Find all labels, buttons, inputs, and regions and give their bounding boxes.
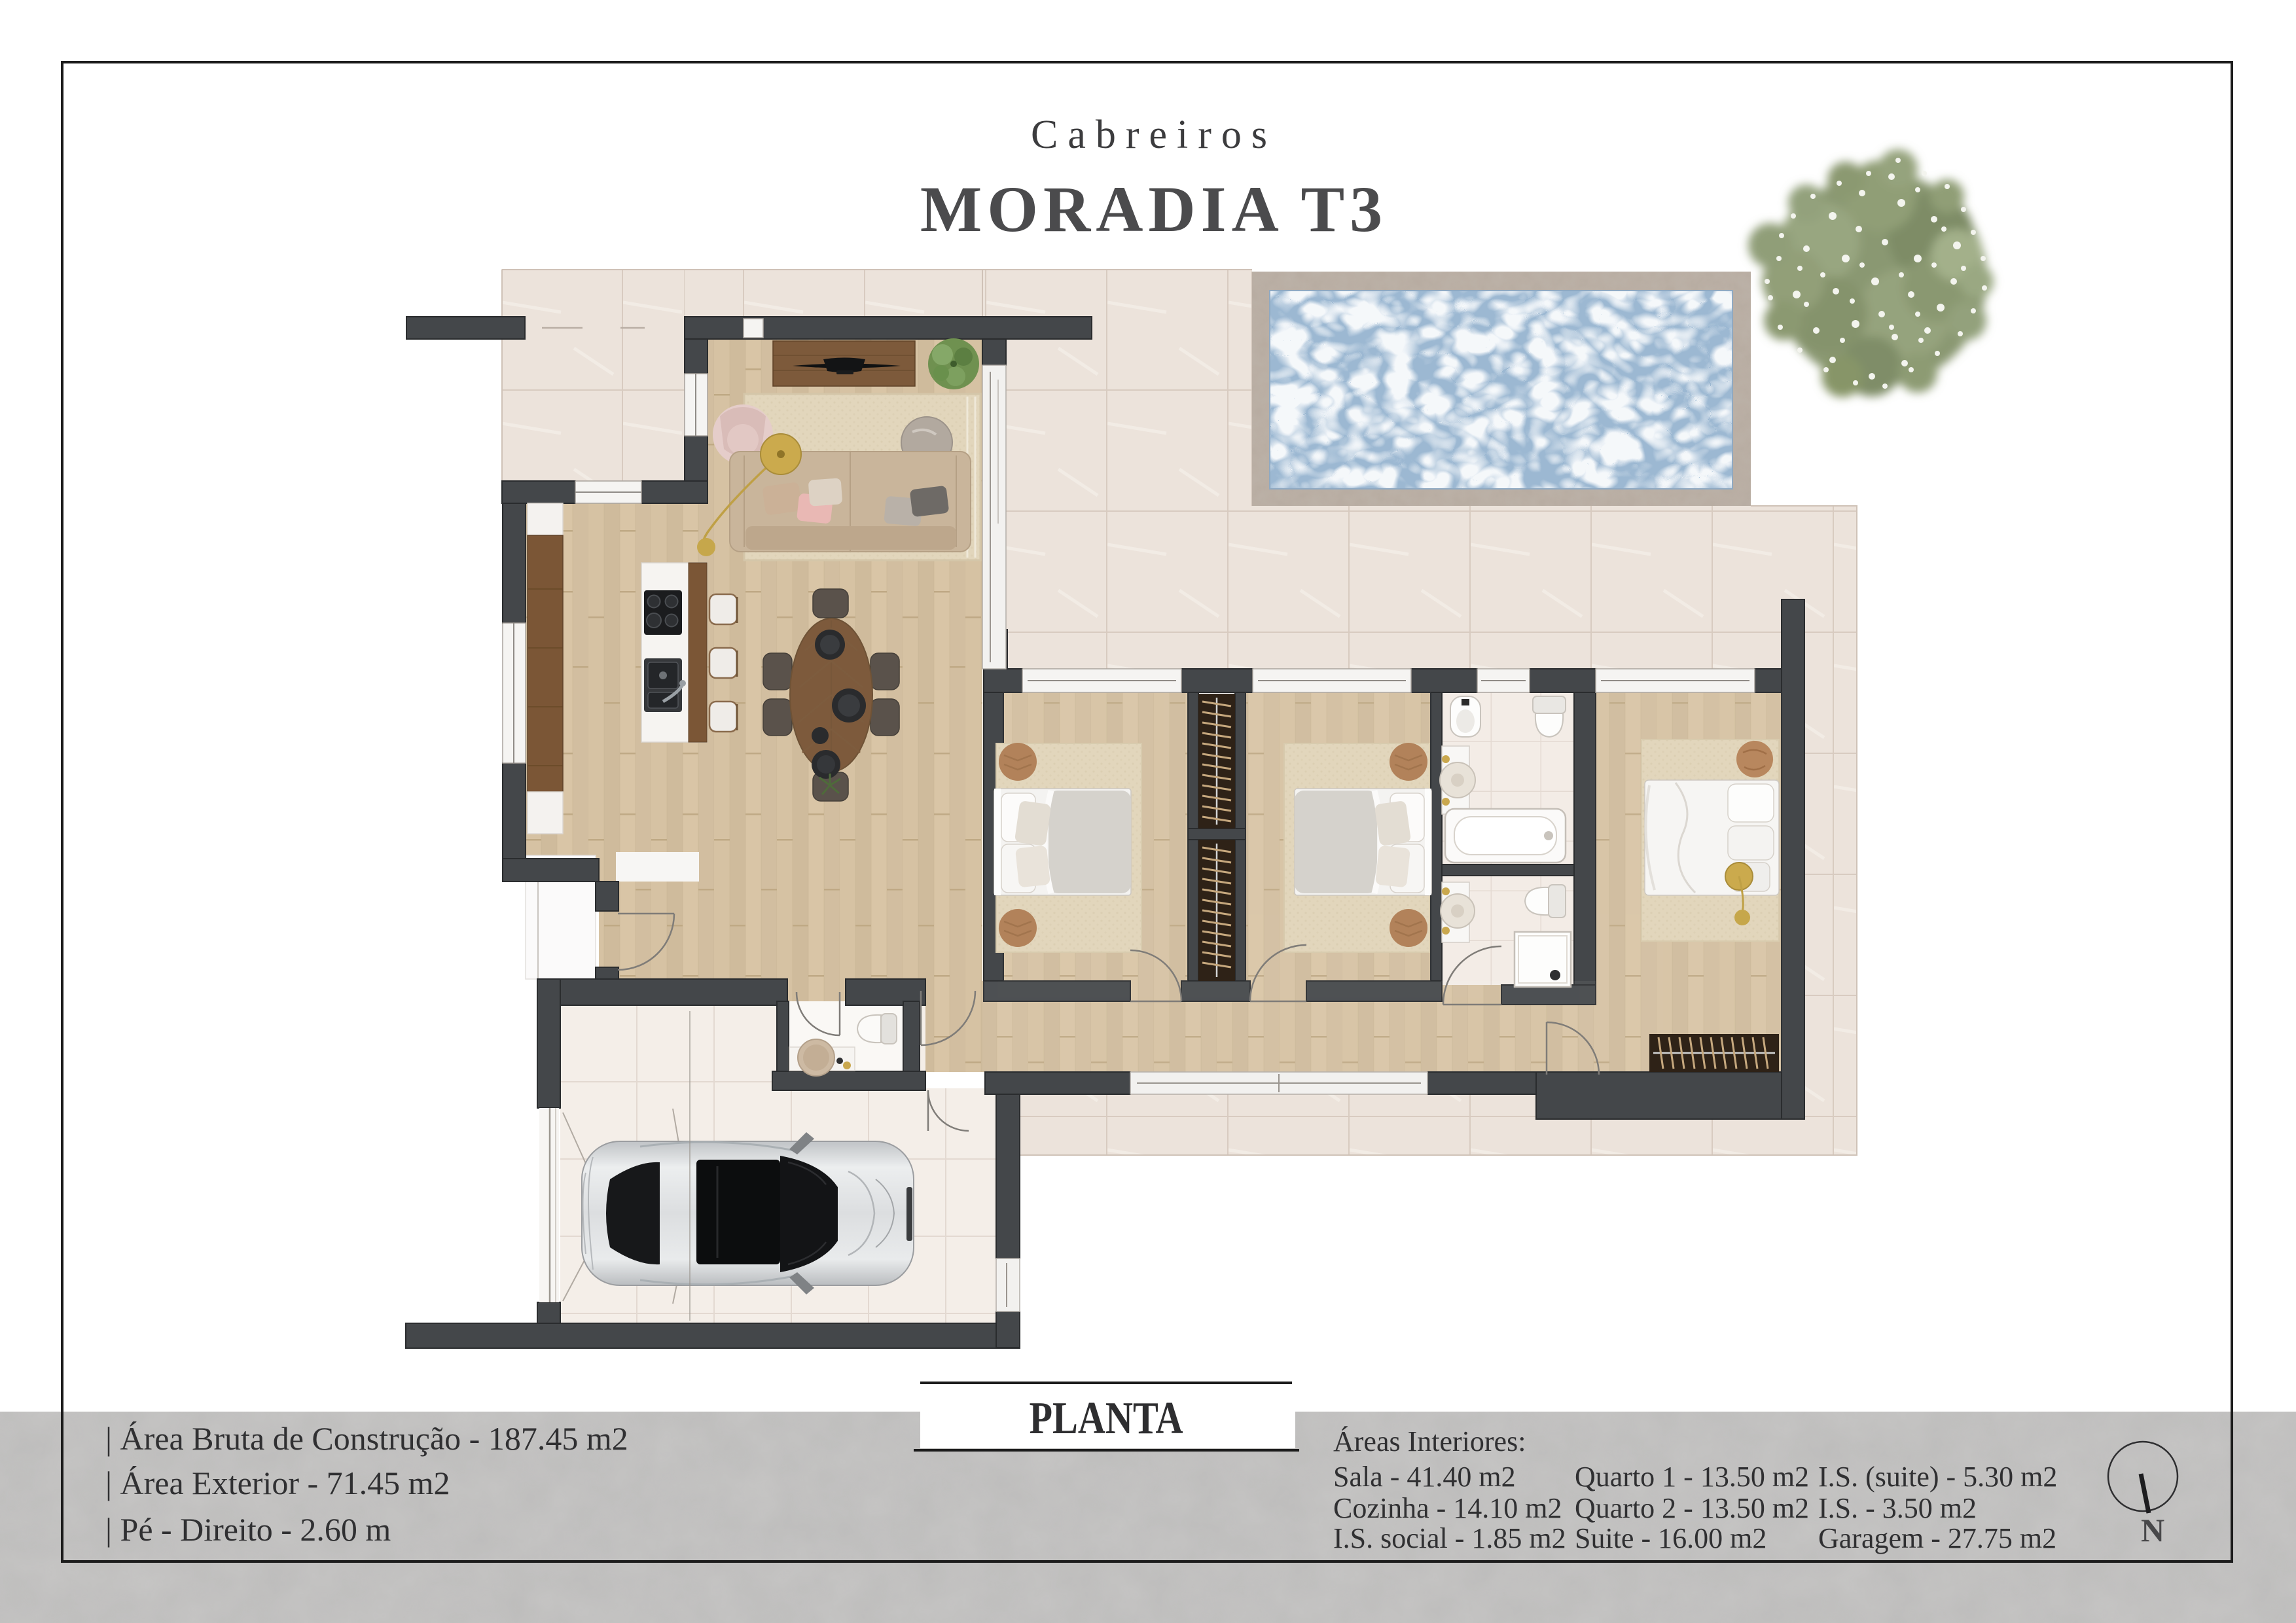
svg-text:Suite - 16.00 m2: Suite - 16.00 m2: [1575, 1522, 1767, 1554]
svg-text:Quarto 1 - 13.50 m2: Quarto 1 - 13.50 m2: [1575, 1461, 1809, 1493]
svg-text:MORADIA T3: MORADIA T3: [920, 173, 1388, 245]
svg-text:Sala - 41.40 m2: Sala - 41.40 m2: [1333, 1461, 1516, 1493]
svg-text:| Pé - Direito - 2.60 m: | Pé - Direito - 2.60 m: [105, 1511, 391, 1548]
svg-text:Cabreiros: Cabreiros: [1031, 113, 1277, 157]
svg-text:Quarto 2 - 13.50 m2: Quarto 2 - 13.50 m2: [1575, 1492, 1809, 1524]
svg-text:Garagem - 27.75 m2: Garagem - 27.75 m2: [1818, 1522, 2056, 1554]
svg-text:N: N: [2141, 1512, 2164, 1548]
svg-text:I.S. social - 1.85 m2: I.S. social - 1.85 m2: [1333, 1522, 1566, 1554]
svg-text:Cozinha - 14.10 m2: Cozinha - 14.10 m2: [1333, 1492, 1562, 1524]
svg-text:| Área Bruta de Construção -: | Área Bruta de Construção - 187.45 m2: [105, 1420, 628, 1457]
svg-text:I.S. - 3.50 m2: I.S. - 3.50 m2: [1818, 1492, 1977, 1524]
svg-text:I.S. (suite) - 5.30 m2: I.S. (suite) - 5.30 m2: [1818, 1461, 2057, 1493]
svg-text:Áreas Interiores:: Áreas Interiores:: [1333, 1425, 1526, 1457]
svg-text:| Área Exterior - 71.45 m2: | Área Exterior - 71.45 m2: [105, 1465, 450, 1501]
svg-text:PLANTA: PLANTA: [1030, 1393, 1183, 1444]
